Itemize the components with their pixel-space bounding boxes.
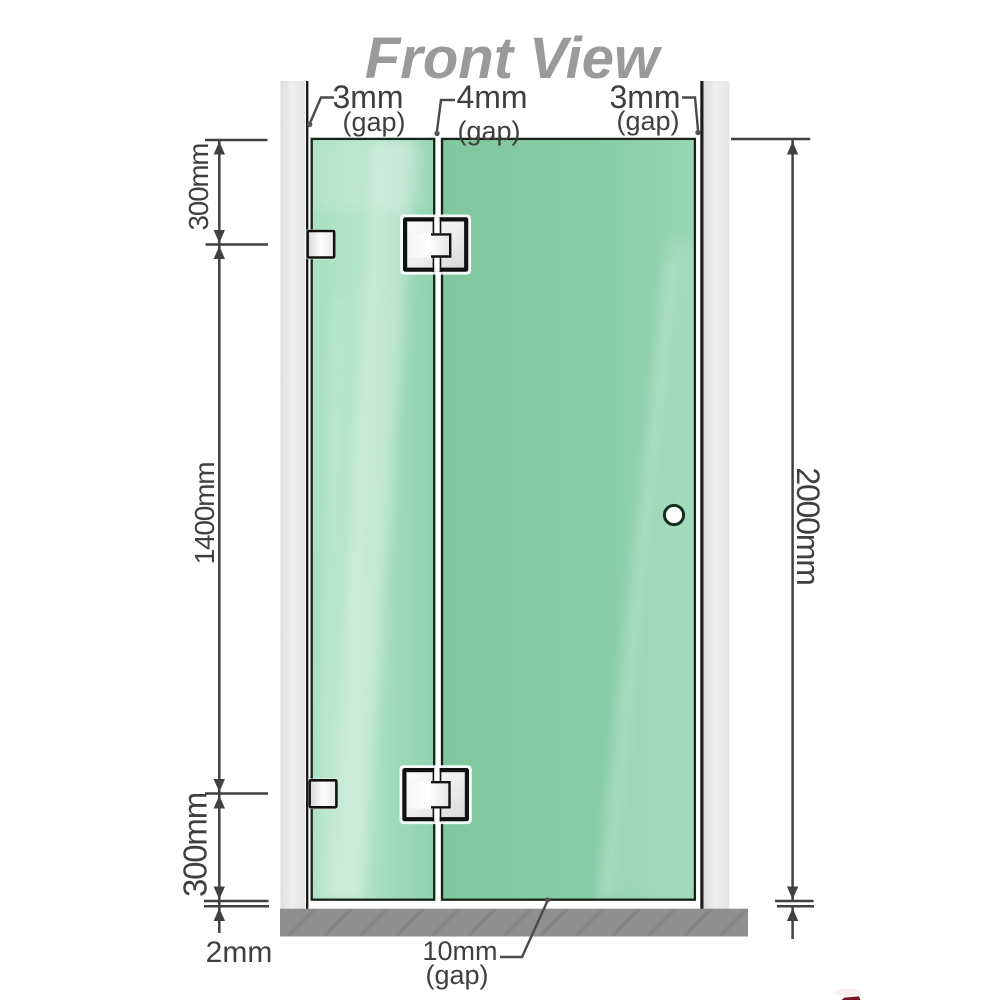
svg-text:4mm: 4mm bbox=[456, 79, 527, 115]
svg-text:(gap): (gap) bbox=[342, 107, 405, 137]
svg-text:300mm: 300mm bbox=[177, 793, 214, 897]
svg-text:2mm: 2mm bbox=[206, 936, 273, 969]
svg-text:(gap): (gap) bbox=[425, 960, 488, 990]
svg-text:(gap): (gap) bbox=[616, 106, 679, 136]
svg-text:300mm: 300mm bbox=[183, 144, 214, 231]
svg-text:(gap): (gap) bbox=[457, 116, 520, 146]
svg-text:1400mm: 1400mm bbox=[189, 463, 220, 565]
svg-text:2000mm: 2000mm bbox=[790, 467, 826, 584]
